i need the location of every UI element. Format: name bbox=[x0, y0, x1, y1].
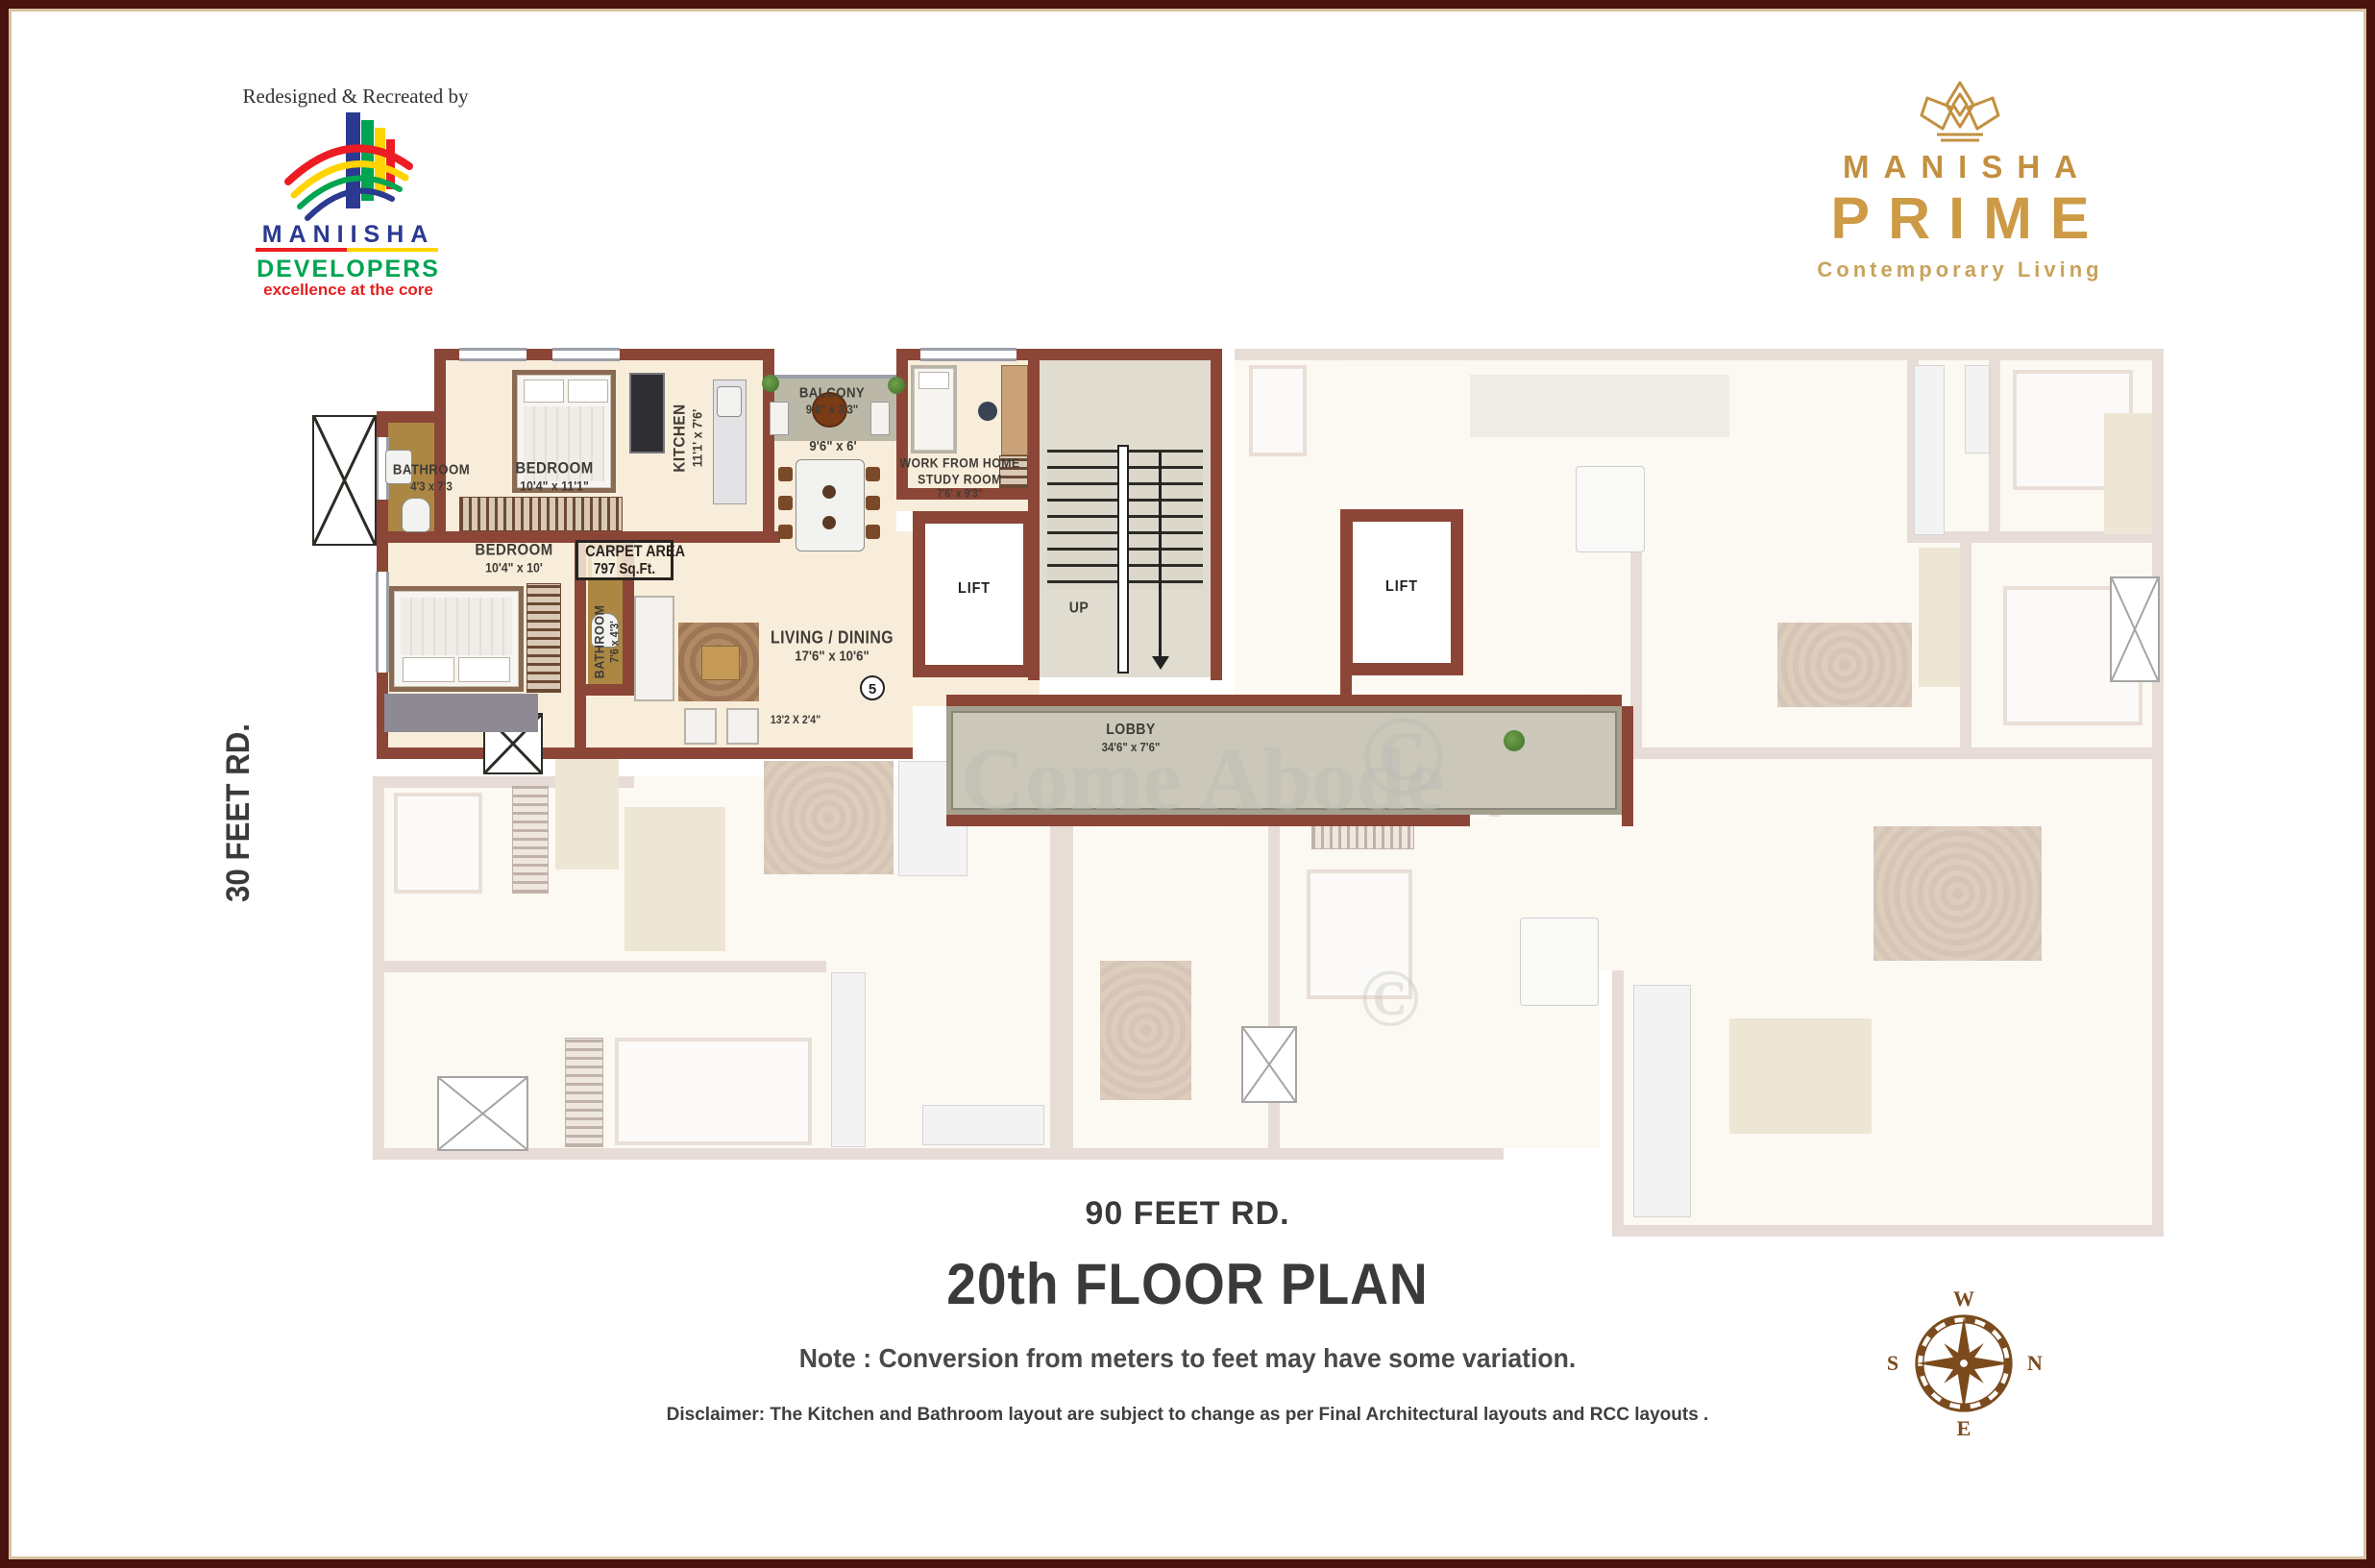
compass-east: E bbox=[1957, 1416, 1971, 1441]
wardrobe bbox=[459, 497, 623, 531]
kitchen-sink bbox=[717, 386, 742, 417]
chair bbox=[866, 525, 880, 539]
lift-shaft-2: LIFT bbox=[1340, 509, 1463, 675]
kitchen-appliance-counter bbox=[629, 373, 665, 453]
compass-west: W bbox=[1953, 1286, 1974, 1311]
wall bbox=[1622, 706, 1633, 826]
chair bbox=[866, 467, 880, 481]
wall bbox=[434, 349, 446, 543]
wfh-label: WORK FROM HOME STUDY ROOM 7'6' x 9'3" bbox=[899, 454, 1019, 500]
dining-dim-label: 9'6" x 6' bbox=[809, 438, 856, 455]
bathroom1-label: BATHROOM 4'3 x 7'3 bbox=[393, 461, 470, 493]
plant bbox=[762, 375, 779, 392]
wc bbox=[402, 498, 430, 532]
chair bbox=[778, 525, 793, 539]
living-label: LIVING / DINING 17'6" x 10'6" bbox=[771, 628, 894, 666]
bed bbox=[389, 586, 524, 692]
lobby-floor bbox=[946, 706, 1622, 815]
passage-dim-label: 13'2 X 2'4" bbox=[771, 713, 820, 726]
coffee-table bbox=[701, 646, 740, 680]
compass-rose-icon bbox=[1907, 1307, 2020, 1420]
lobby-label: LOBBY 34'6" x 7'6" bbox=[1102, 722, 1161, 754]
balcony-chair bbox=[870, 402, 890, 435]
stair-arrow-head bbox=[1152, 656, 1169, 670]
bathroom2-label: BATHROOM 7'6 x 4'3' bbox=[592, 605, 622, 679]
window bbox=[552, 348, 620, 361]
chair bbox=[778, 496, 793, 510]
window bbox=[376, 572, 389, 673]
lift-label-1: LIFT bbox=[918, 580, 1029, 598]
carpet-area-box: CARPET AREA 797 Sq.Ft. bbox=[575, 540, 673, 580]
chair bbox=[778, 467, 793, 481]
wall bbox=[586, 684, 634, 696]
wardrobe bbox=[526, 583, 561, 693]
kitchen-label: KITCHEN 11'1' x 7'6' bbox=[671, 404, 706, 472]
window bbox=[920, 348, 1016, 361]
window bbox=[459, 348, 526, 361]
stair-down-arrow bbox=[1159, 452, 1162, 658]
wall bbox=[1211, 349, 1222, 680]
compass-south: S bbox=[1887, 1351, 1898, 1376]
table-decor bbox=[822, 485, 836, 499]
study-desk bbox=[1001, 365, 1028, 455]
bed-platform bbox=[384, 694, 538, 732]
balcony-label: BALCONY 9'6" x 3'3" bbox=[799, 384, 865, 416]
wall bbox=[377, 411, 446, 423]
wall bbox=[1040, 349, 1222, 360]
road-bottom-label: 90 FEET RD. bbox=[0, 1195, 2375, 1233]
plant bbox=[888, 377, 905, 394]
wall bbox=[946, 695, 1622, 706]
lift-label-2: LIFT bbox=[1346, 578, 1457, 596]
wall bbox=[377, 747, 913, 759]
armchair bbox=[684, 708, 717, 745]
armchair bbox=[726, 708, 759, 745]
desk-chair bbox=[978, 402, 997, 421]
duct-hatch bbox=[312, 415, 377, 546]
table-decor bbox=[822, 516, 836, 529]
stair-treads-right bbox=[1129, 450, 1203, 589]
single-bed bbox=[911, 365, 957, 453]
wall bbox=[1340, 675, 1352, 706]
chair bbox=[866, 496, 880, 510]
stair-rail bbox=[1117, 445, 1129, 674]
unit-number-badge: 5 bbox=[860, 675, 885, 700]
compass-north: N bbox=[2027, 1351, 2043, 1376]
stair-treads-left bbox=[1047, 450, 1117, 589]
wall bbox=[946, 815, 1470, 826]
bedroom2-label: BEDROOM 10'4" x 10' bbox=[475, 541, 552, 576]
balcony-chair bbox=[770, 402, 789, 435]
plant bbox=[1504, 730, 1525, 751]
bedroom1-label: BEDROOM 10'4" x 11'1" bbox=[515, 459, 593, 495]
sofa bbox=[634, 596, 674, 701]
dining-table bbox=[796, 459, 865, 551]
stairs-up-label: UP bbox=[1069, 600, 1089, 619]
lift-shaft-1: LIFT bbox=[913, 511, 1036, 677]
